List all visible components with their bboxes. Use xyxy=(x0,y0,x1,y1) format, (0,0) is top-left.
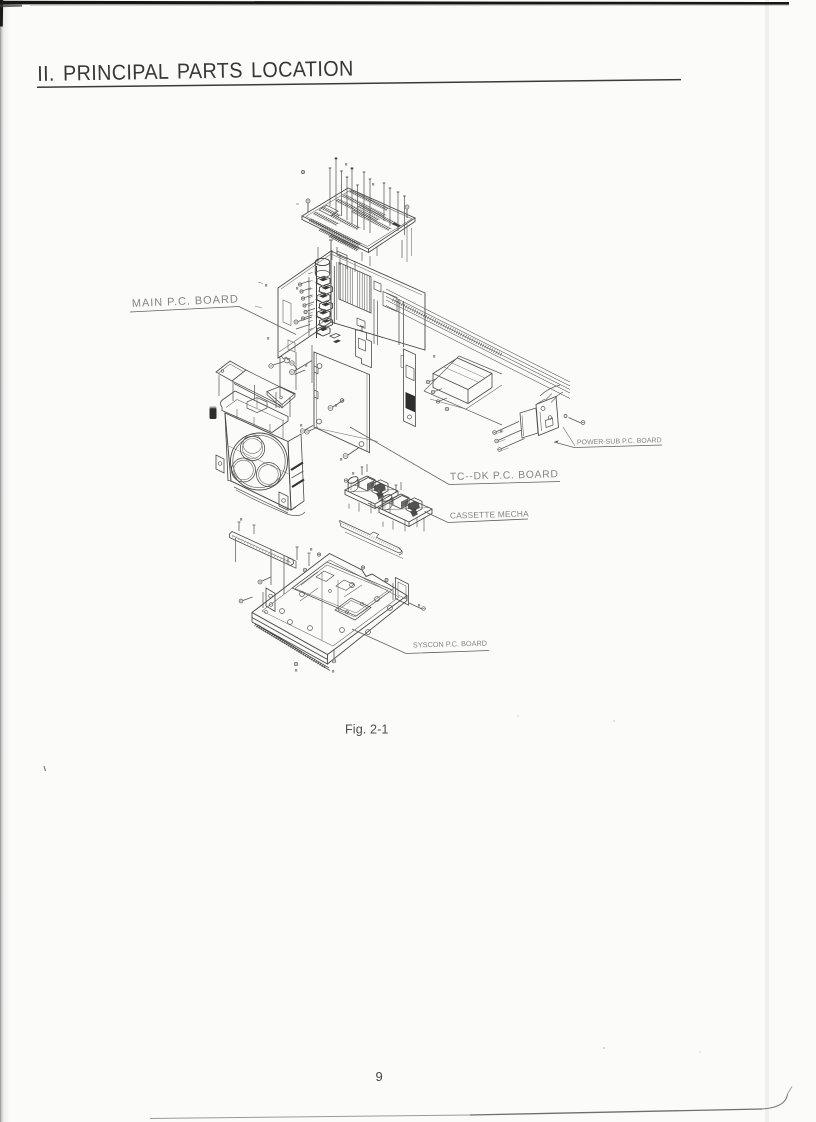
svg-text:Fig. 2-1: Fig. 2-1 xyxy=(345,723,389,737)
svg-text:CASSETTE MECHA: CASSETTE MECHA xyxy=(450,508,529,520)
svg-text:TC--DK P.C. BOARD: TC--DK P.C. BOARD xyxy=(450,469,559,483)
svg-text:SYSCON P.C. BOARD: SYSCON P.C. BOARD xyxy=(413,639,487,650)
svg-text:9: 9 xyxy=(376,1069,383,1084)
